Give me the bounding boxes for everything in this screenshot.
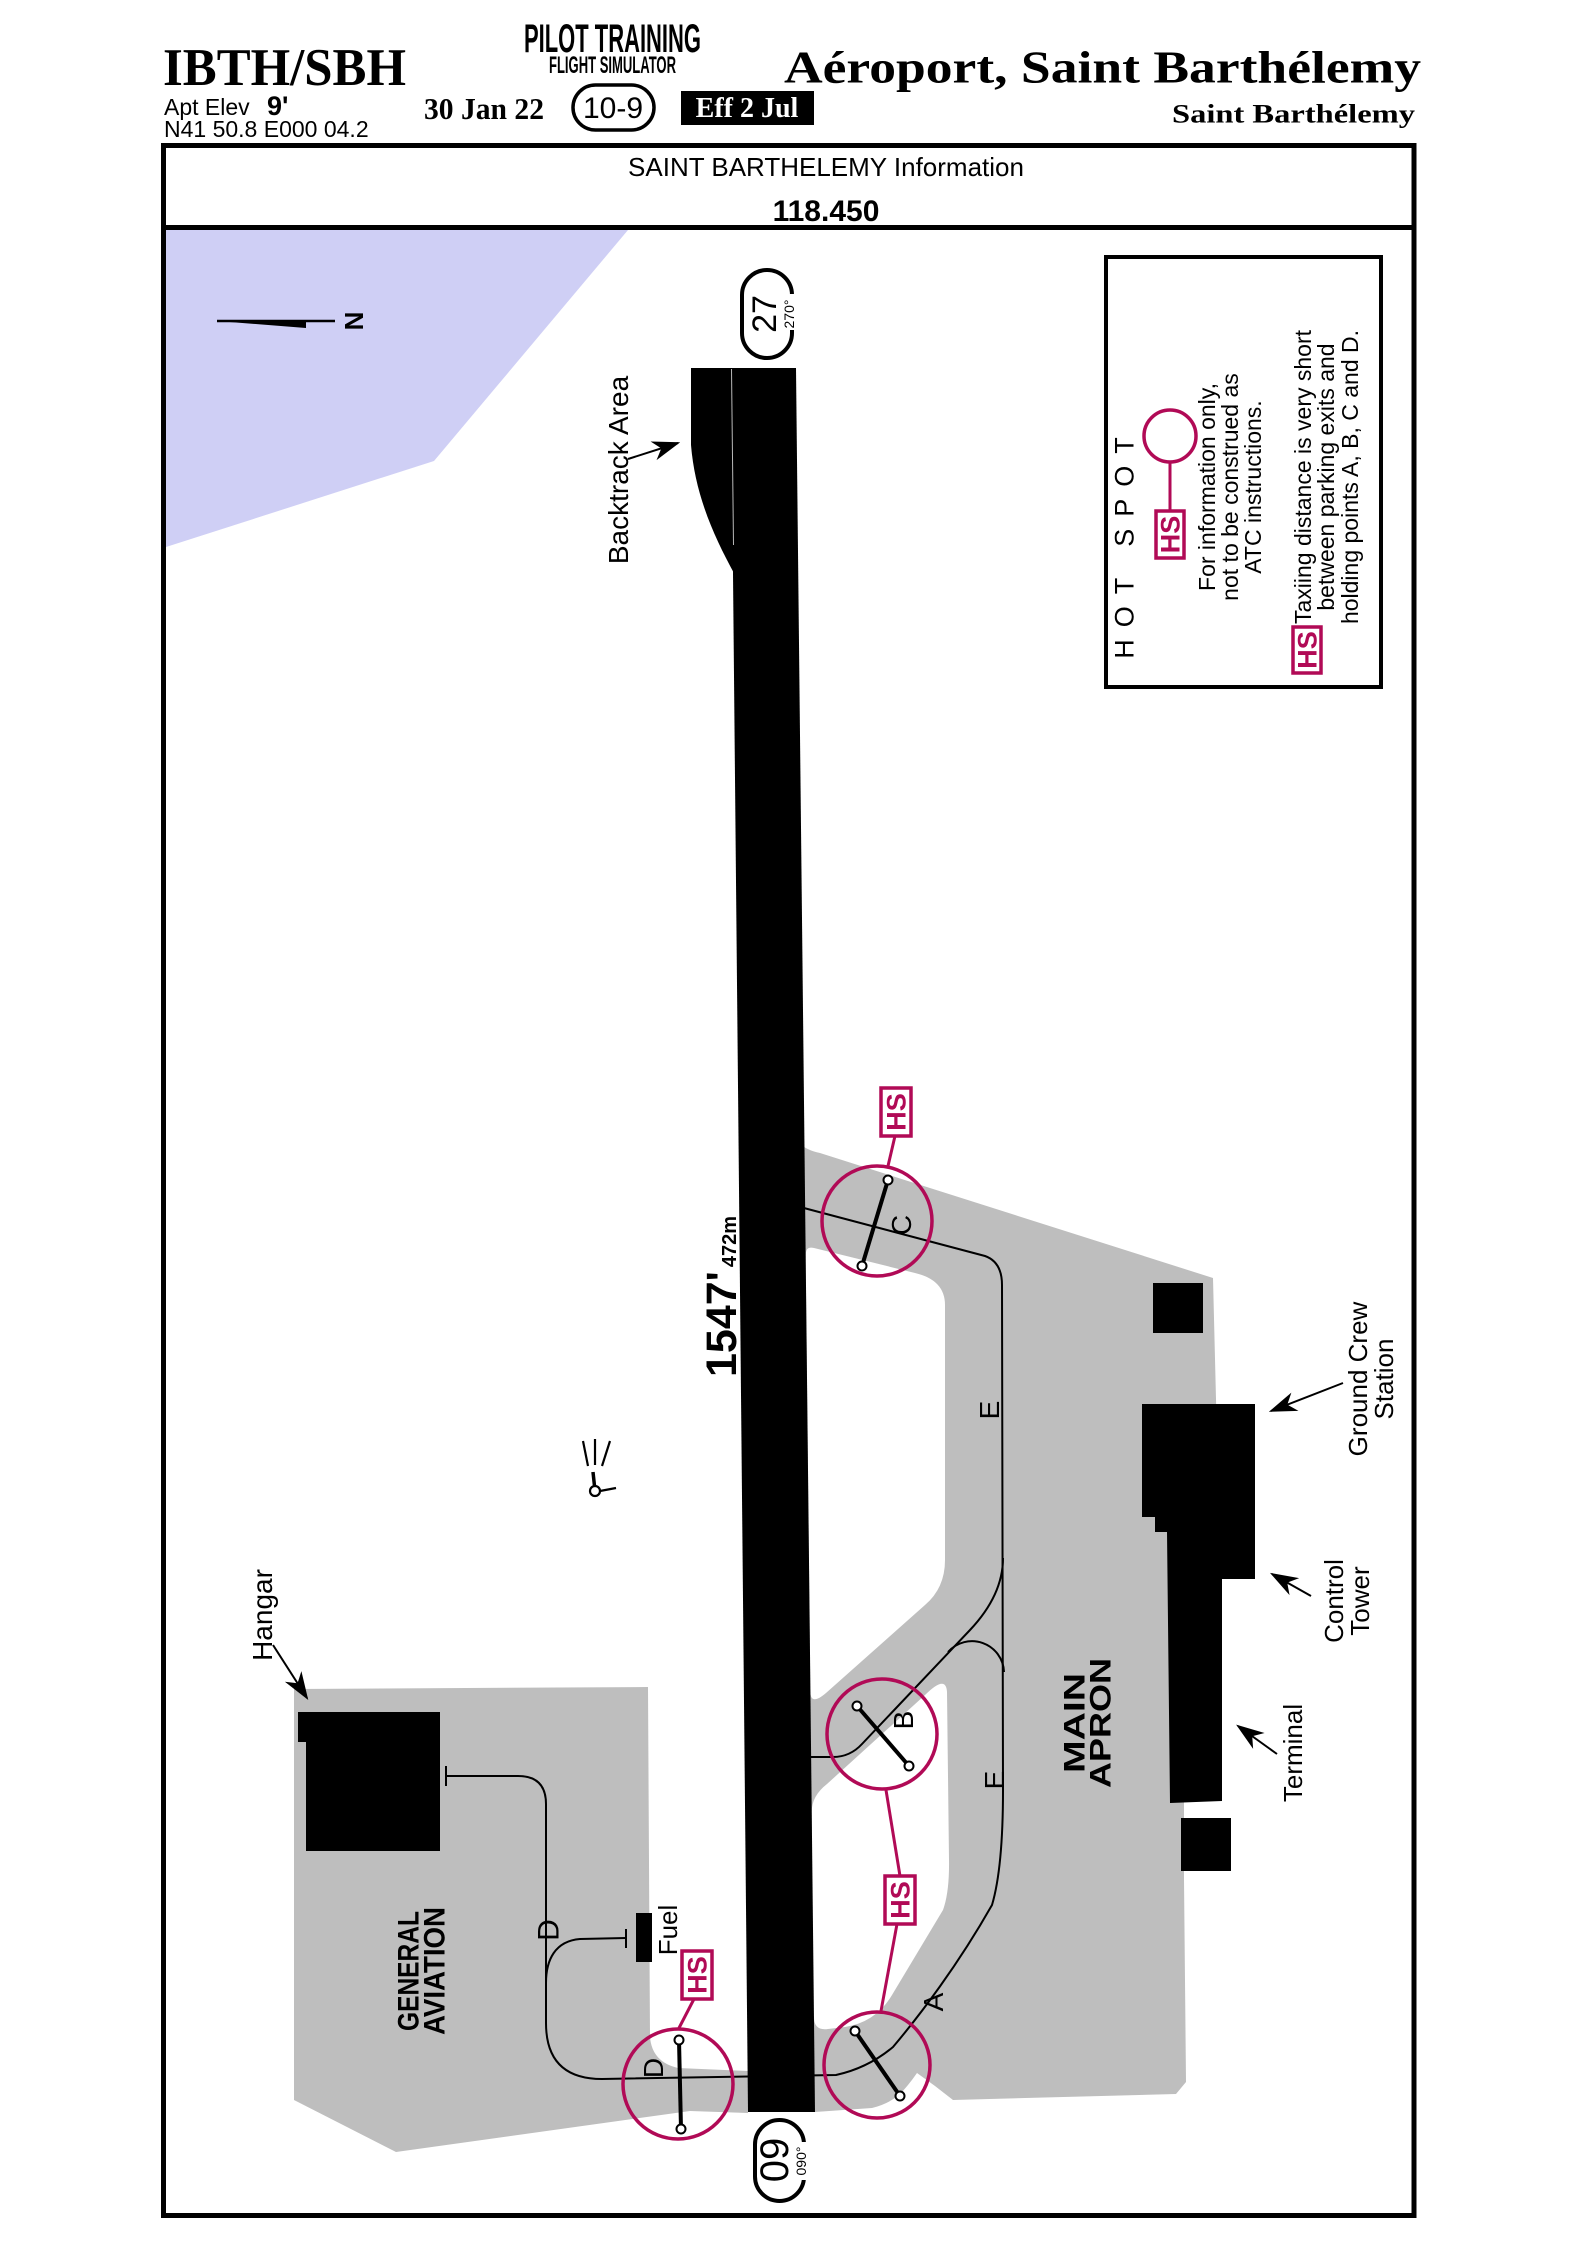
svg-text:APRON: APRON	[1085, 1658, 1118, 1788]
svg-text:FLIGHT SIMULATOR: FLIGHT SIMULATOR	[549, 52, 676, 79]
svg-text:D: D	[638, 2058, 669, 2078]
svg-text:A: A	[918, 1992, 949, 2011]
svg-text:1547'472m: 1547'472m	[698, 1216, 746, 1377]
svg-text:10-9: 10-9	[583, 92, 643, 125]
svg-text:Tower: Tower	[1345, 1566, 1375, 1636]
svg-text:AVIATION: AVIATION	[419, 1907, 452, 2035]
svg-text:27: 27	[746, 295, 784, 333]
svg-text:HOT SPOT: HOT SPOT	[1109, 425, 1139, 659]
svg-text:Hangar: Hangar	[247, 1569, 278, 1661]
svg-text:09: 09	[753, 2138, 797, 2183]
svg-text:Station: Station	[1369, 1339, 1399, 1420]
svg-text:N41 50.8 E000 04.2: N41 50.8 E000 04.2	[164, 116, 369, 142]
svg-text:HS: HS	[885, 1881, 915, 1919]
svg-text:B: B	[888, 1711, 919, 1730]
svg-text:Eff 2 Jul: Eff 2 Jul	[696, 93, 799, 124]
svg-text:N: N	[339, 312, 369, 331]
svg-text:HS: HS	[682, 1956, 712, 1994]
svg-text:Aéroport, Saint Barthélemy: Aéroport, Saint Barthélemy	[784, 42, 1421, 93]
svg-text:HS: HS	[1292, 631, 1322, 669]
svg-text:holding points A, B, C and D.: holding points A, B, C and D.	[1337, 330, 1363, 624]
svg-text:IBTH/SBH: IBTH/SBH	[163, 39, 406, 97]
svg-text:ATC instructions.: ATC instructions.	[1240, 400, 1266, 573]
svg-text:090°: 090°	[793, 2147, 809, 2176]
svg-text:D: D	[533, 1919, 566, 1941]
svg-text:270°: 270°	[781, 300, 797, 329]
svg-text:E: E	[974, 1401, 1005, 1420]
svg-text:Backtrack Area: Backtrack Area	[603, 375, 634, 564]
svg-text:between parking exits and: between parking exits and	[1313, 343, 1339, 610]
svg-text:E: E	[979, 1771, 1010, 1790]
svg-text:Fuel: Fuel	[653, 1905, 683, 1956]
svg-text:Saint Barthélemy: Saint Barthélemy	[1172, 100, 1415, 129]
svg-text:SAINT BARTHELEMY Information: SAINT BARTHELEMY Information	[628, 152, 1024, 182]
svg-text:HS: HS	[1155, 516, 1185, 554]
svg-text:HS: HS	[881, 1093, 911, 1131]
svg-text:118.450: 118.450	[773, 195, 880, 228]
svg-text:C: C	[886, 1215, 917, 1235]
svg-text:Terminal: Terminal	[1278, 1704, 1308, 1802]
svg-text:30 Jan 22: 30 Jan 22	[424, 91, 544, 126]
